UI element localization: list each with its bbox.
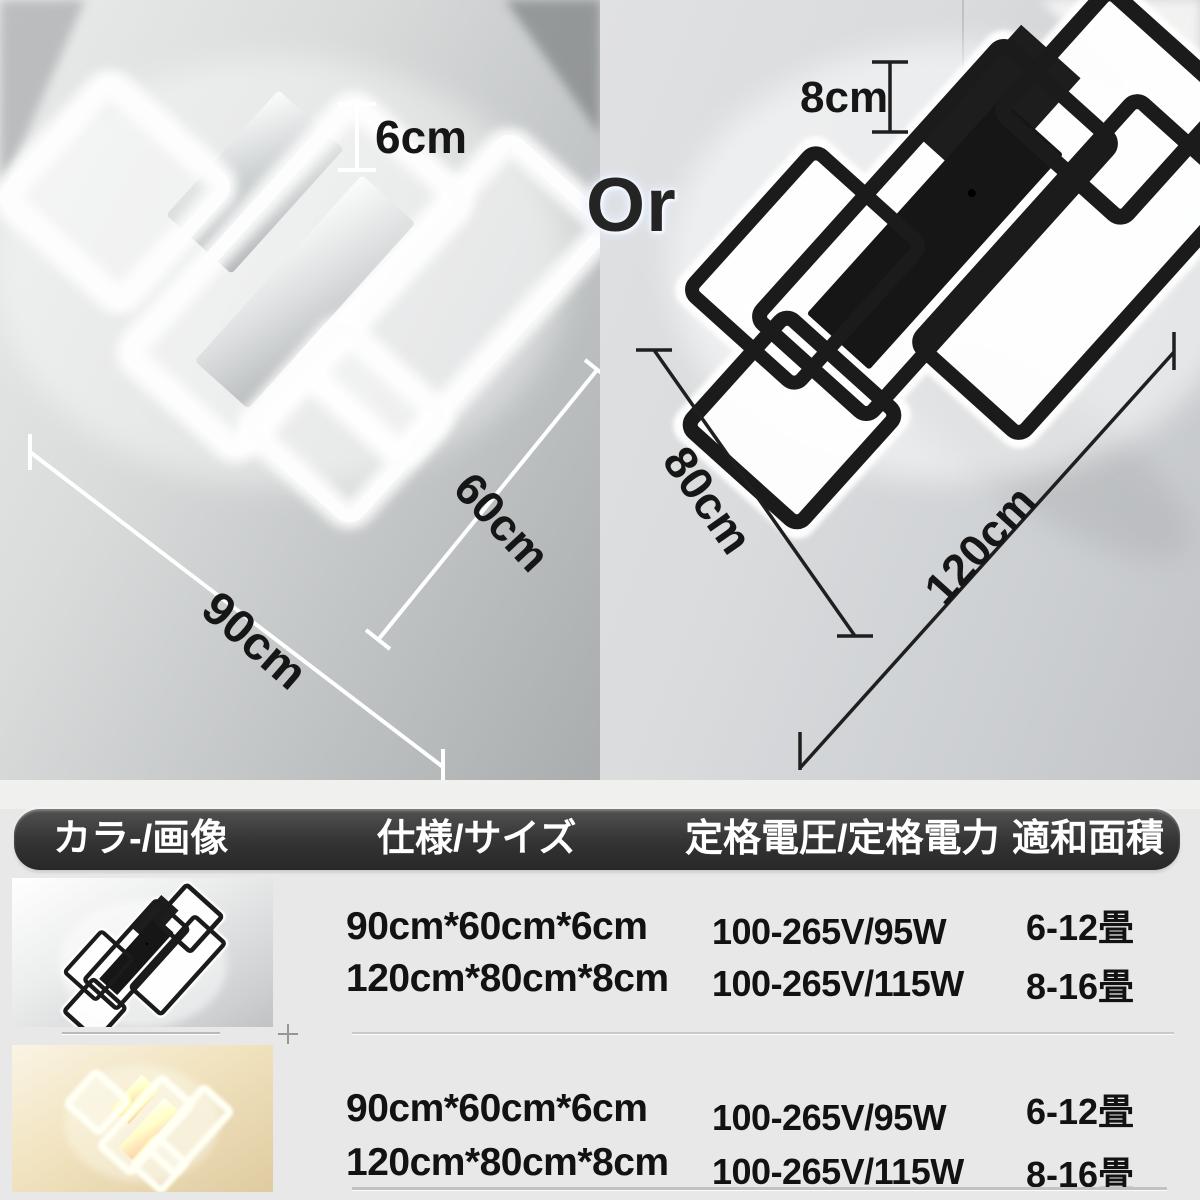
spec-size-cell: 90cm*60cm*6cm — [346, 906, 647, 949]
product-photo-black-variant: 8cm 120cm 80cm — [600, 0, 1200, 780]
carousel-indicator — [62, 1032, 220, 1034]
thumbnail-white-warm-variant — [12, 1045, 273, 1192]
spec-area-cell: 6-12畳 — [1026, 1092, 1134, 1132]
plus-icon — [278, 1024, 298, 1044]
header-area: 適和面積 — [1012, 809, 1164, 870]
row-divider — [352, 1032, 1174, 1034]
spec-size-cell: 120cm*80cm*8cm — [346, 958, 669, 1001]
wall-corner-shadow — [505, 0, 600, 135]
thumbnail-black-variant — [12, 878, 273, 1027]
spec-area-cell: 8-16畳 — [1026, 967, 1134, 1007]
table-header-bar: カラ-/画像 仕様/サイズ 定格電圧/定格電力 適和面積 — [14, 809, 1180, 870]
height-dimension-label: 6cm — [375, 114, 467, 160]
product-infographic: 6cm 90cm 60cm 8cm — [0, 0, 1200, 1200]
photo-table-divider — [0, 780, 1200, 809]
bottom-divider — [352, 1187, 1167, 1190]
spec-size-cell: 90cm*60cm*6cm — [346, 1088, 647, 1131]
header-color-image: カラ-/画像 — [53, 809, 228, 870]
spec-power-cell: 100-265V/95W — [712, 1098, 946, 1138]
spec-power-cell: 100-265V/95W — [712, 912, 946, 952]
spec-power-cell: 100-265V/115W — [712, 1152, 964, 1192]
spec-power-cell: 100-265V/115W — [712, 964, 964, 1004]
header-spec-size: 仕様/サイズ — [377, 809, 576, 870]
white-ceiling-light — [0, 57, 600, 521]
height-dimension-label: 8cm — [800, 76, 888, 120]
spec-area-cell: 6-12畳 — [1026, 908, 1134, 948]
or-separator-label: Or — [586, 168, 677, 244]
header-voltage-power: 定格電圧/定格電力 — [685, 809, 1000, 870]
product-photo-white-variant: 6cm 90cm 60cm — [0, 0, 600, 780]
spec-size-cell: 120cm*80cm*8cm — [346, 1142, 669, 1185]
